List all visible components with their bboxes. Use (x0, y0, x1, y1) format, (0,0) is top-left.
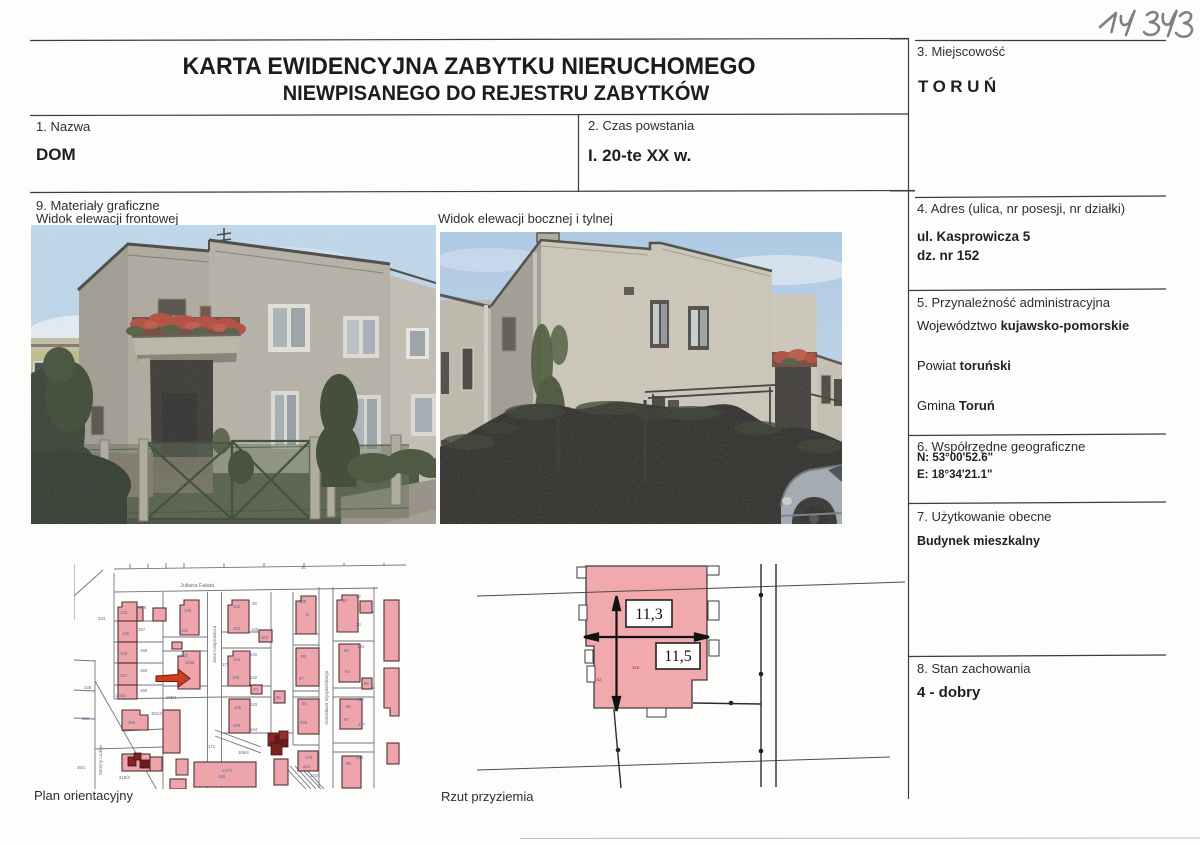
svg-text:154: 154 (181, 628, 189, 633)
svg-text:101: 101 (233, 604, 241, 609)
svg-text:Wiosny Ludów: Wiosny Ludów (98, 744, 103, 775)
svg-text:11,3: 11,3 (635, 606, 662, 623)
svg-text:147/1: 147/1 (222, 768, 233, 773)
svg-text:126: 126 (120, 651, 128, 656)
svg-text:103: 103 (261, 635, 269, 640)
svg-text:156: 156 (139, 605, 147, 610)
svg-text:222: 222 (82, 716, 90, 721)
svg-text:119a: 119a (185, 660, 195, 665)
svg-text:158: 158 (140, 648, 148, 653)
svg-text:127: 127 (120, 673, 128, 678)
svg-text:102: 102 (233, 626, 241, 631)
svg-text:104: 104 (233, 657, 241, 662)
svg-text:39: 39 (252, 601, 257, 606)
svg-text:99: 99 (301, 654, 306, 659)
svg-text:23: 23 (356, 622, 361, 627)
svg-text:165/1: 165/1 (166, 695, 177, 700)
svg-text:144: 144 (250, 727, 258, 732)
svg-text:160: 160 (140, 688, 148, 693)
svg-text:85: 85 (364, 681, 369, 686)
svg-text:233: 233 (98, 616, 106, 621)
svg-text:116: 116 (632, 665, 640, 670)
svg-text:Jana Kasprowicza: Jana Kasprowicza (212, 625, 217, 663)
svg-text:153: 153 (180, 653, 188, 658)
svg-text:73: 73 (253, 687, 258, 692)
svg-text:250: 250 (128, 720, 136, 725)
svg-text:83: 83 (344, 648, 349, 653)
svg-text:92: 92 (356, 594, 361, 599)
svg-text:105: 105 (232, 675, 240, 680)
svg-text:11,5: 11,5 (664, 648, 691, 665)
svg-text:88: 88 (346, 761, 351, 766)
svg-text:106: 106 (234, 705, 242, 710)
svg-text:90: 90 (342, 598, 347, 603)
svg-text:171: 171 (208, 744, 216, 749)
svg-text:134: 134 (357, 644, 365, 649)
svg-text:94: 94 (302, 701, 307, 706)
svg-text:119: 119 (182, 677, 189, 682)
svg-text:Juliana Fałata: Juliana Fałata (180, 583, 215, 589)
svg-text:87: 87 (344, 717, 349, 722)
svg-text:127: 127 (358, 722, 366, 727)
svg-text:122: 122 (120, 610, 128, 615)
svg-text:178: 178 (305, 755, 313, 760)
svg-text:96: 96 (276, 695, 281, 700)
svg-text:151/3: 151/3 (151, 711, 162, 716)
svg-text:143: 143 (250, 702, 258, 707)
svg-text:157: 157 (138, 627, 146, 632)
svg-text:97: 97 (299, 676, 304, 681)
svg-text:1319: 1319 (310, 773, 320, 778)
svg-text:11: 11 (305, 612, 310, 617)
svg-text:141: 141 (250, 652, 258, 657)
svg-text:125: 125 (122, 631, 130, 636)
svg-text:126: 126 (357, 697, 365, 702)
svg-text:215/3: 215/3 (119, 775, 130, 780)
svg-text:Stanisława Wyspiańskiego: Stanisława Wyspiańskiego (324, 670, 329, 725)
svg-text:172: 172 (222, 662, 230, 667)
svg-text:86: 86 (346, 704, 351, 709)
svg-text:135: 135 (184, 608, 192, 613)
svg-text:100: 100 (299, 599, 307, 604)
svg-text:165/4: 165/4 (238, 750, 249, 755)
svg-text:140: 140 (251, 627, 259, 632)
svg-text:164/2: 164/2 (115, 693, 126, 698)
svg-text:228: 228 (84, 685, 92, 690)
svg-text:162: 162 (594, 677, 602, 682)
svg-text:159: 159 (140, 668, 148, 673)
svg-text:93a: 93a (300, 720, 308, 725)
svg-text:109: 109 (233, 723, 241, 728)
svg-text:199: 199 (356, 755, 364, 760)
svg-text:36: 36 (301, 565, 306, 570)
svg-text:142: 142 (250, 675, 258, 680)
svg-text:221: 221 (303, 764, 311, 769)
svg-text:84: 84 (345, 669, 350, 674)
svg-text:150: 150 (218, 774, 226, 779)
svg-text:39/1: 39/1 (77, 765, 86, 770)
